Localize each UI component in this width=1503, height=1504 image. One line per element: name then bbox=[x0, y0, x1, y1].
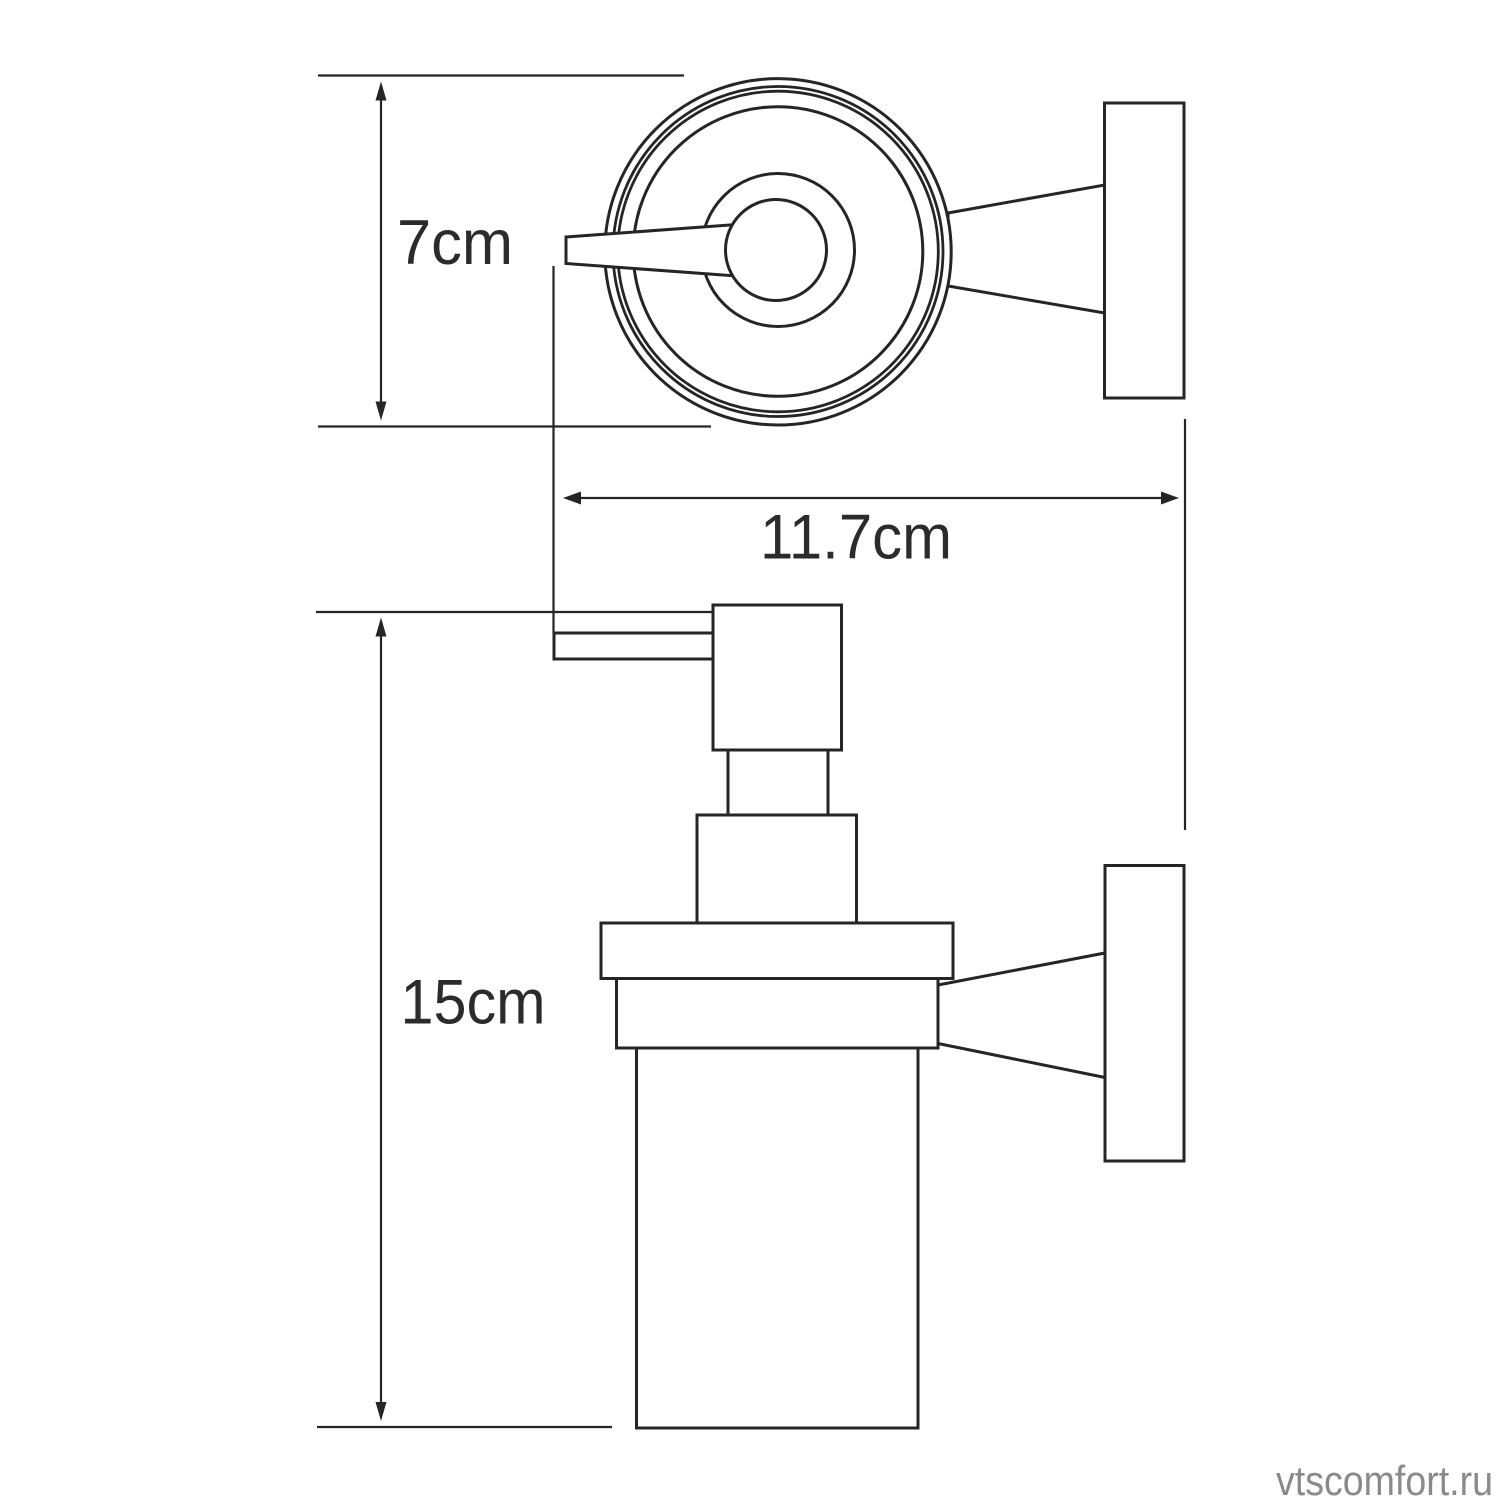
svg-text:11.7cm: 11.7cm bbox=[760, 503, 952, 573]
svg-text:15cm: 15cm bbox=[401, 968, 546, 1038]
svg-text:7cm: 7cm bbox=[397, 208, 513, 278]
svg-text:vtscomfort.ru: vtscomfort.ru bbox=[1276, 1457, 1493, 1504]
